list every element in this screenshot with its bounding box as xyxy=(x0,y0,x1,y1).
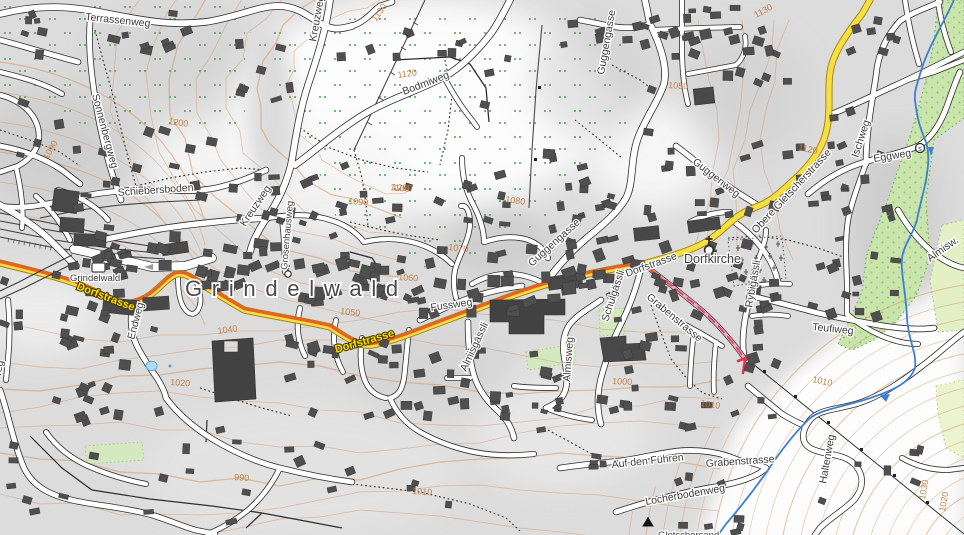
svg-text:Gletschersand: Gletschersand xyxy=(658,530,719,535)
svg-text:1010: 1010 xyxy=(412,486,433,497)
svg-text:1050: 1050 xyxy=(340,306,361,318)
svg-text:1020: 1020 xyxy=(170,377,191,388)
svg-text:1050: 1050 xyxy=(668,80,689,91)
svg-text:1070: 1070 xyxy=(448,242,469,254)
svg-text:1090: 1090 xyxy=(348,196,369,207)
svg-text:Grindelwald: Grindelwald xyxy=(185,276,408,301)
svg-text:1000: 1000 xyxy=(612,376,633,387)
svg-text:1060: 1060 xyxy=(398,272,419,283)
svg-text:990: 990 xyxy=(234,472,250,483)
svg-text:s: s xyxy=(918,146,922,153)
svg-text:Dorfkirche: Dorfkirche xyxy=(684,252,741,266)
svg-text:1200: 1200 xyxy=(392,182,413,193)
